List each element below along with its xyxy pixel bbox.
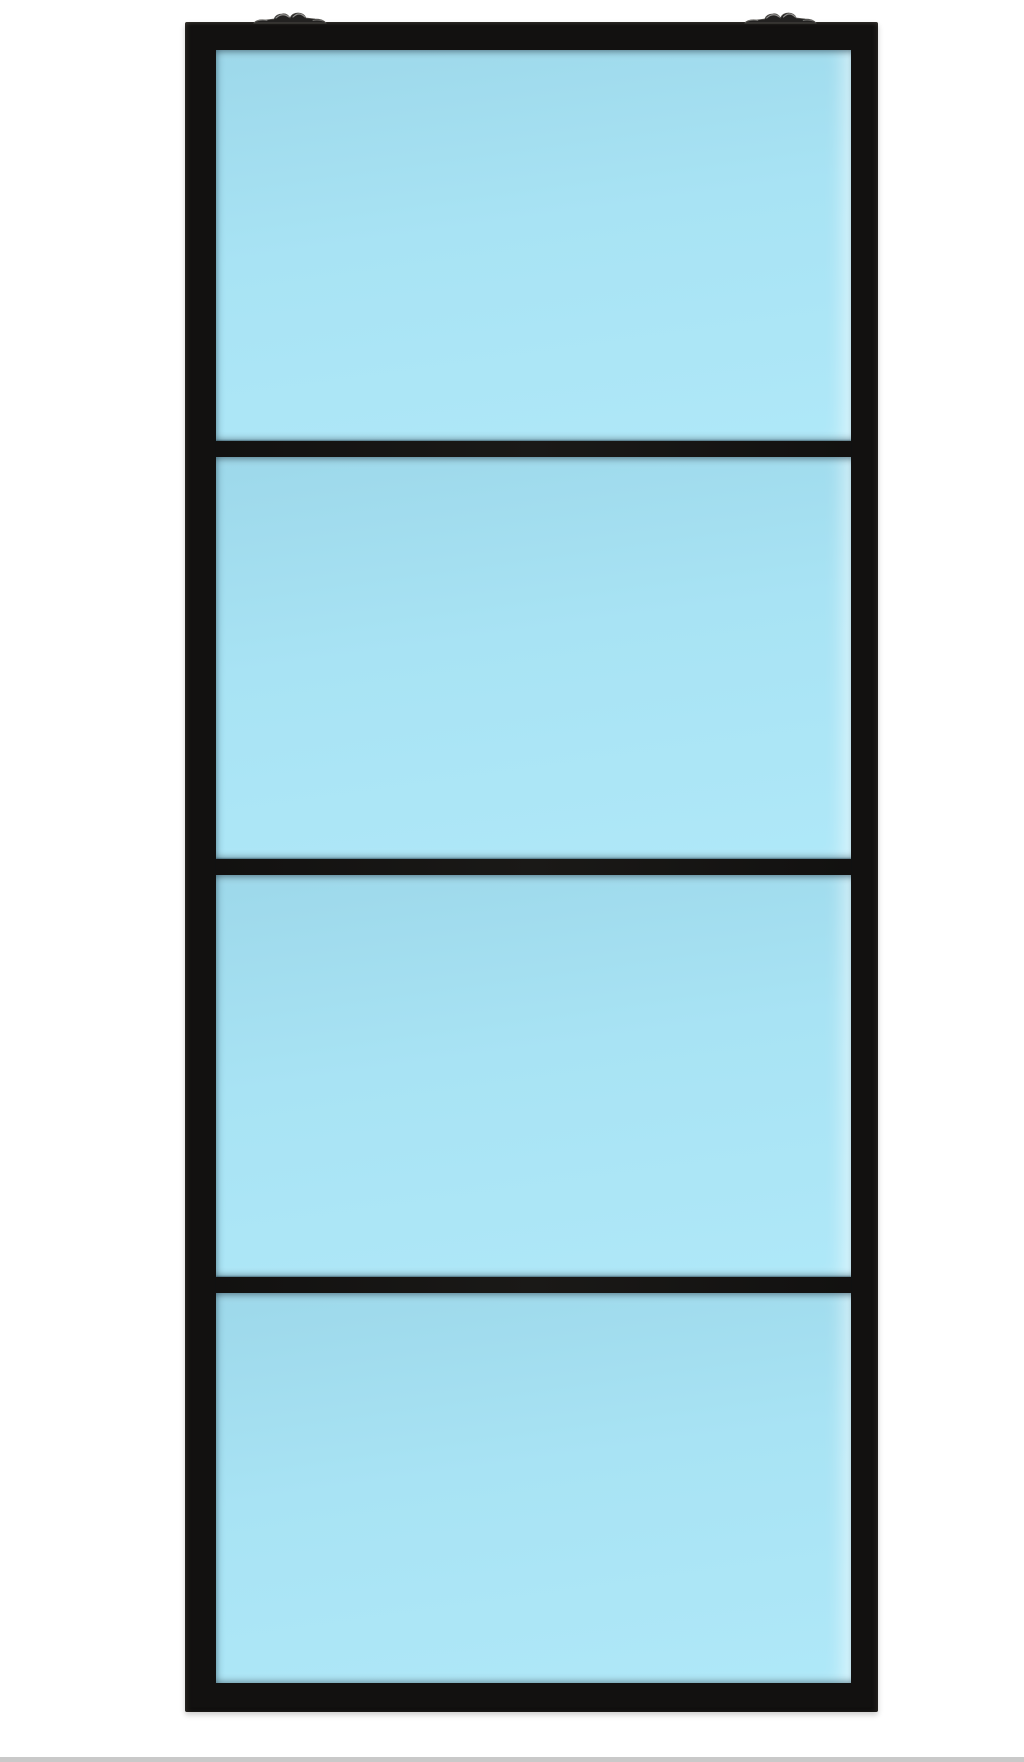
page-bottom-strip [0,1757,1024,1762]
glass-panel-3 [216,875,851,1278]
frame-divider [216,1277,851,1293]
frame-divider [216,859,851,875]
glass-panel-2 [216,457,851,859]
roller-bracket-right [743,10,818,24]
panel-stack [216,50,851,1683]
glass-panel-4 [216,1293,851,1683]
product-photo [0,0,1024,1762]
roller-bracket-left [252,10,328,24]
frame-divider [216,441,851,457]
sliding-door-frame [185,22,878,1712]
glass-panel-1 [216,50,851,441]
